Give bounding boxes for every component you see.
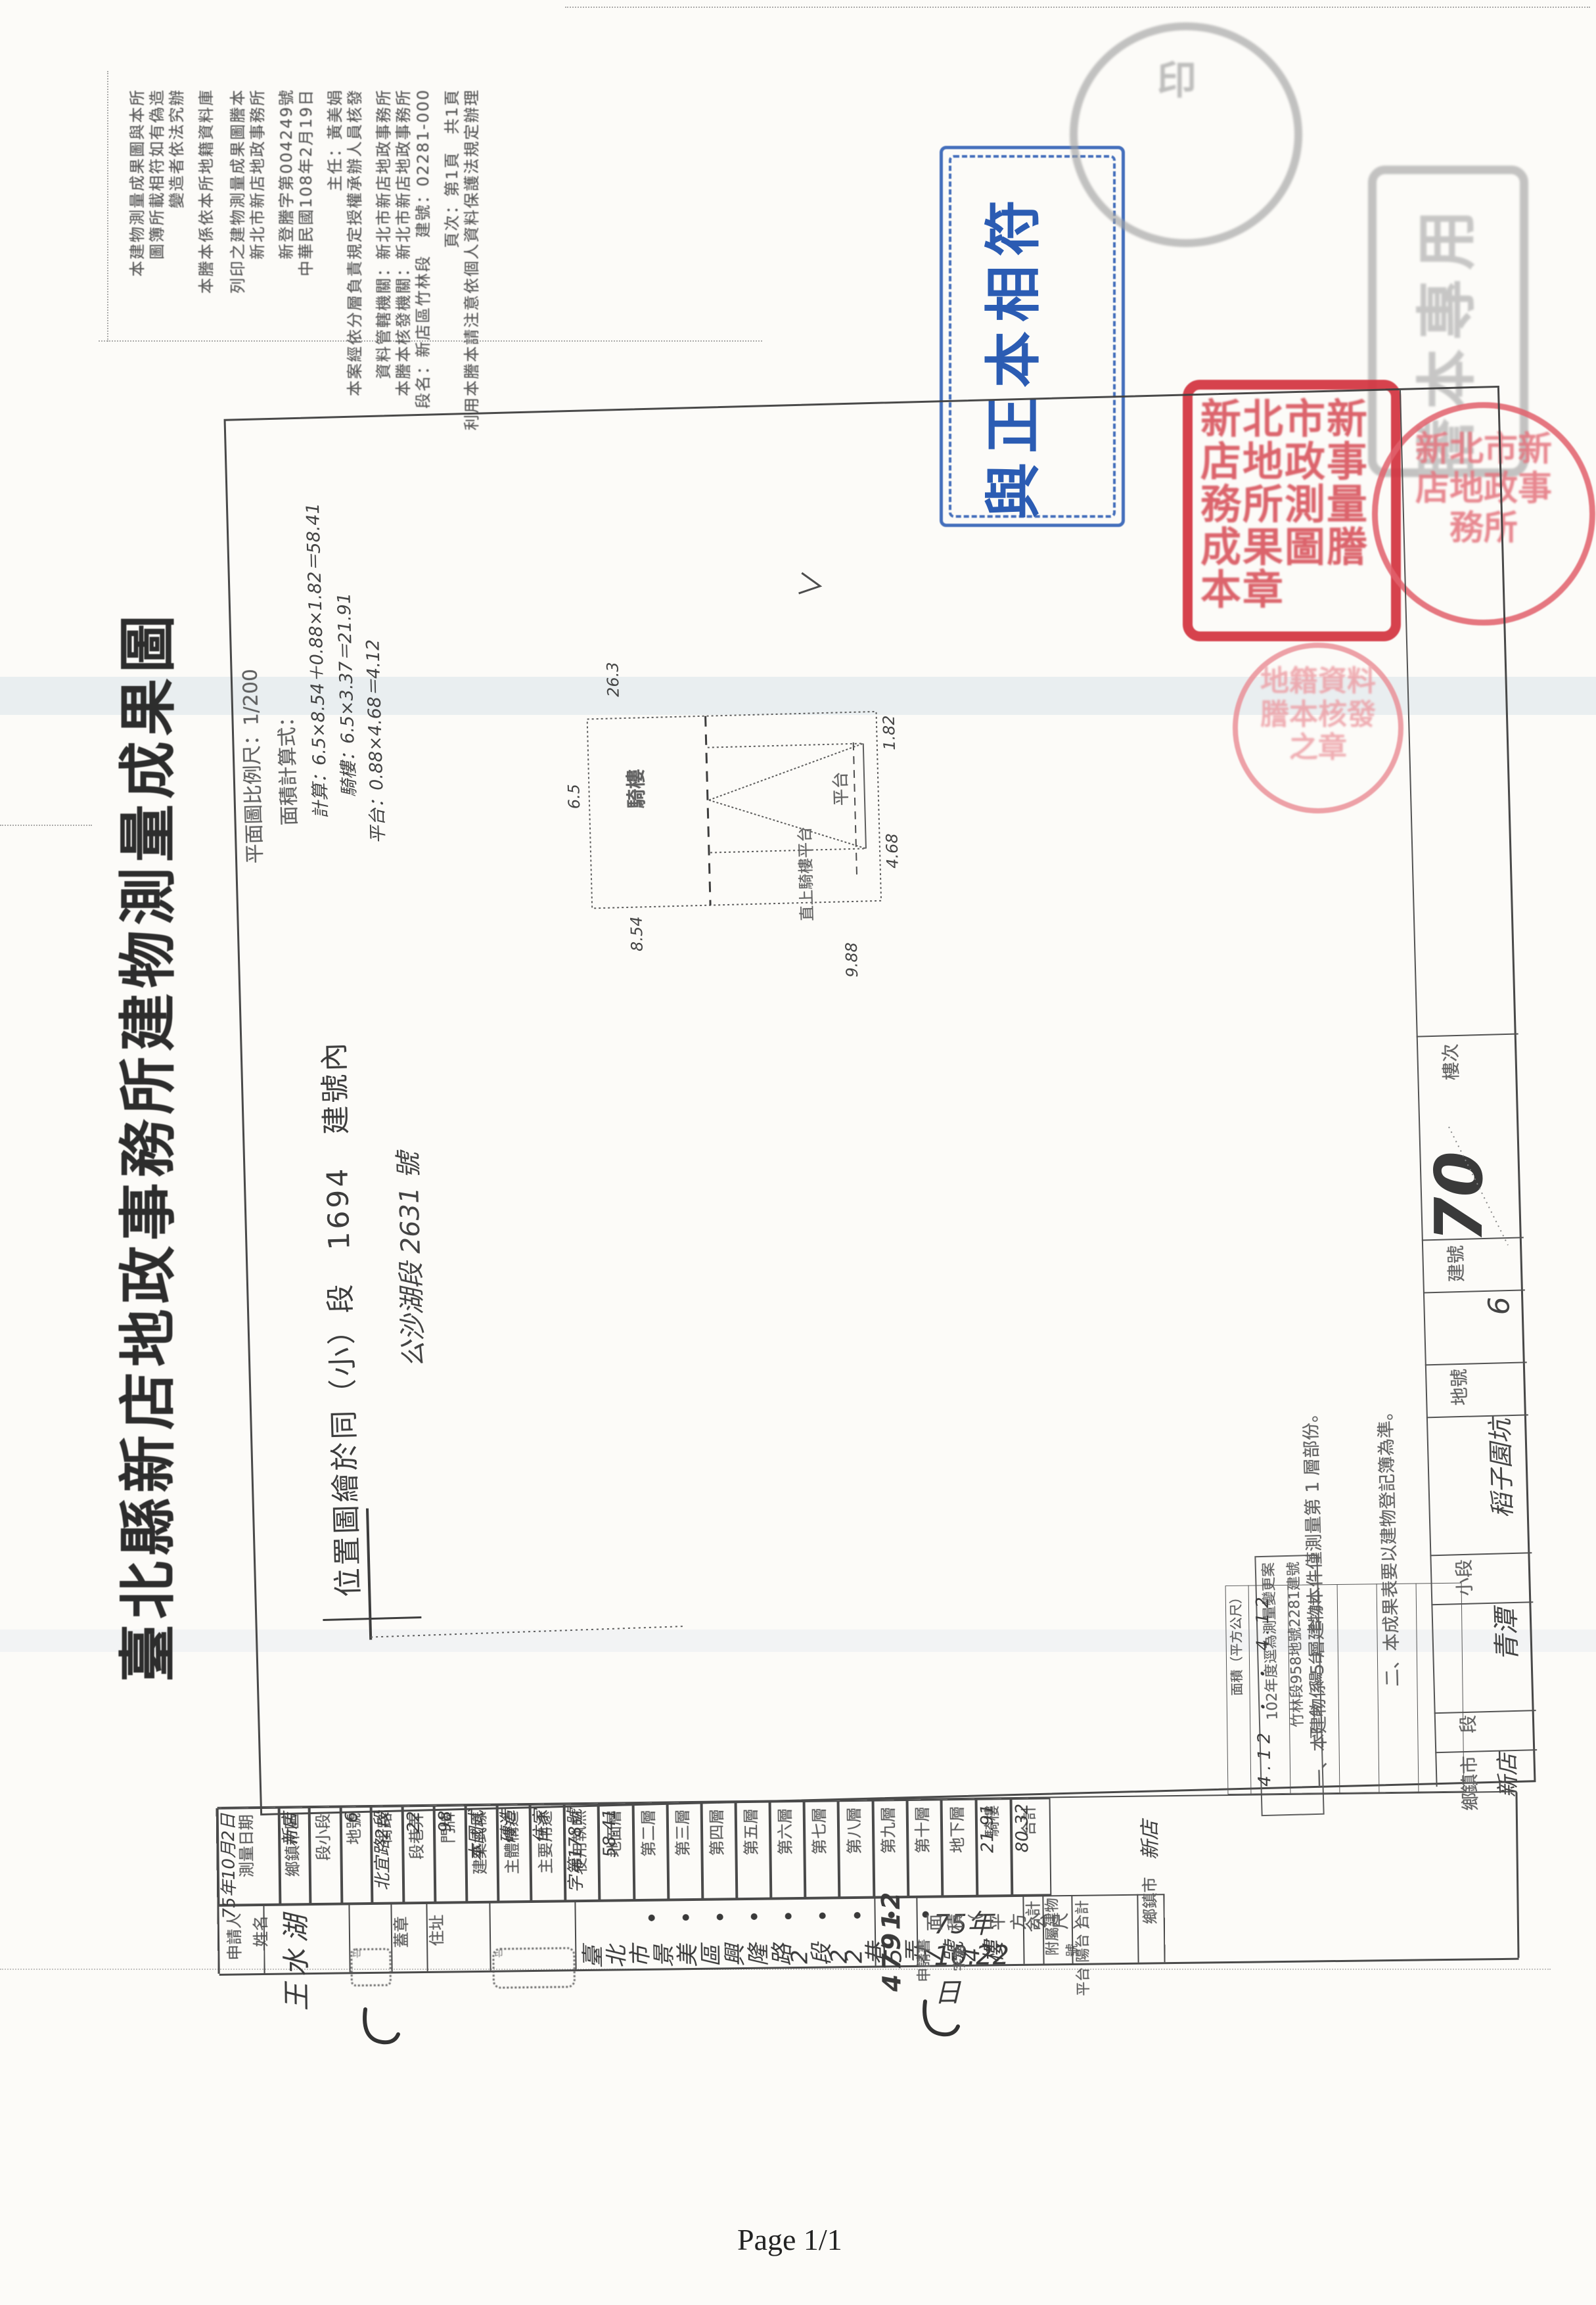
application-label: 申請書: [917, 1939, 932, 1982]
strip-cell-divider: [1423, 1289, 1525, 1293]
certification-line: 頁次：第1頁 共1頁: [444, 89, 461, 248]
stair-label: 直上騎樓平台: [797, 826, 816, 921]
table-cell-label: 段小段: [315, 1814, 332, 1861]
table-cell-label: 第二層: [641, 1810, 658, 1857]
certification-line: 段名：新店區竹林段 建號：02281-000: [415, 89, 432, 409]
dim-bottom-right: 9.88: [844, 942, 861, 978]
table-cell-value: 75年10月2日: [220, 1813, 239, 1919]
arcade-label: 騎樓: [626, 769, 648, 809]
area-calc-label: 面積計算式：: [277, 707, 300, 826]
certification-line: 列印之建物測量成果圖謄本: [230, 89, 246, 294]
scan-noise-line: [107, 71, 108, 342]
certification-line: 新登謄字第004249號: [279, 89, 295, 260]
area-calc-line: 騎樓：6.5×3.37＝21.91: [335, 593, 359, 798]
table-cell-label: 第九層: [880, 1806, 898, 1854]
certification-line: 本案經依分層負責規定授權承辦人員核發: [347, 89, 363, 396]
table-cell-label: 第十層: [915, 1806, 932, 1854]
platform-label: 平台: [832, 771, 852, 806]
plan-scale-label: 平面圖比例尺：1/200: [240, 668, 265, 863]
table-rule: [574, 1901, 576, 1969]
location-cross: [313, 1499, 712, 1655]
township-label: 鄉鎮市: [1142, 1877, 1159, 1924]
table-cell-label: 第六層: [777, 1808, 794, 1855]
area-calc-line: 平台：0.88×4.68＝4.12: [364, 639, 388, 844]
certification-line: 本謄本係依本所地籍資料庫: [198, 89, 215, 294]
table-cell-value: 21.91: [979, 1804, 997, 1853]
certification-line: 中華民國108年2月19日: [298, 89, 315, 277]
annex-col-labels: 平台 陽台 合計: [1308, 1591, 1325, 1739]
table-dot-value: [683, 1914, 689, 1921]
table-cell-label: 第八層: [846, 1807, 863, 1854]
area-calc-line: 計算：6.5×8.54＋0.88×1.82＝58.41: [304, 503, 331, 819]
strip-cell-divider: [1430, 1552, 1532, 1556]
table-cell-value: 6: [344, 1812, 361, 1823]
certification-line: 本謄本核發機關：新北市新店地政事務所: [396, 89, 412, 396]
table-rule: [1163, 1894, 1165, 1962]
dim-top: 26.3: [604, 662, 622, 697]
annex-values: 4.12 ・ ・ 4.12: [1254, 1591, 1275, 1787]
gray-round-seal-inner: 印: [1117, 59, 1242, 191]
scan-noise-line: [565, 7, 1590, 8]
certification-line: 本建物測量成果圖與本所: [129, 89, 146, 277]
location-handnote: 公沙湖段 2631 號: [395, 1152, 428, 1367]
table-cell-label: 地下層: [949, 1806, 966, 1853]
strip-value: 稻子園坑: [1488, 1418, 1516, 1518]
applicant-name-label: 姓名: [253, 1915, 270, 1947]
floor-plan: 騎樓 平台 直上騎樓平台 26.3 6.5 8.54 9.88 1.82 4.6…: [585, 678, 902, 995]
township-value: 新店: [1140, 1820, 1161, 1860]
application-number: 21974: [878, 1890, 905, 1993]
check-mark: ＞: [794, 560, 829, 606]
table-rule: [489, 1902, 491, 1971]
table-dot-value: [717, 1913, 723, 1920]
table-dot-value: [785, 1913, 792, 1919]
table-cell-label: 第四層: [709, 1808, 726, 1856]
certification-line: 新北市新店地政事務所: [250, 89, 266, 260]
strip-value: 青潭: [1493, 1609, 1522, 1662]
table-cell-value: 字第178號: [567, 1809, 586, 1893]
table-cell-value: 80.32: [1014, 1804, 1032, 1853]
table-cell-label: 測量日期: [239, 1814, 256, 1877]
table-cell-value: 北宜路2段: [374, 1812, 393, 1891]
area-unit-label: 面積（平方公尺）: [923, 1907, 1092, 1933]
application-no-prefix: 字第: [952, 1945, 966, 1971]
table-rule: [1515, 1792, 1519, 1958]
table-dot-value: [819, 1913, 826, 1919]
certification-line: 變造者依法究辦: [169, 89, 185, 208]
table-rule: [916, 1897, 918, 1965]
annex-group-label: 附屬建物: [1045, 1898, 1060, 1955]
applicant-label: 申請人: [227, 1913, 244, 1960]
certification-line: 圖簿所載相符如有偽造: [149, 89, 166, 260]
strip-label: 樓次: [1441, 1043, 1461, 1081]
strip-value: 6: [1484, 1296, 1515, 1315]
page-footer: Page 1/1: [737, 2222, 842, 2257]
annex-col-labels: 平台 陽台 合計: [1075, 1900, 1091, 1996]
pen-scratch: [1442, 1127, 1521, 1252]
address-label: 住址: [429, 1915, 446, 1946]
strip-label: 地號: [1449, 1369, 1470, 1406]
table-cell-label: 第三層: [675, 1809, 692, 1856]
table-rule: [348, 1904, 350, 1972]
table-cell-value: 本國式: [468, 1810, 487, 1861]
ink-seal: 印: [492, 1947, 576, 1989]
strip-cell-divider: [1425, 1361, 1527, 1365]
annex-unit-label: 面積（平方公尺）: [1229, 1591, 1244, 1696]
table-cell-value: 58.41: [601, 1808, 620, 1858]
table-dot-value: [649, 1915, 655, 1921]
strip-divider: [1400, 390, 1438, 1787]
table-cell-value: 98: [437, 1810, 455, 1832]
table-dot-value: [854, 1912, 860, 1919]
ink-seal: 印: [350, 1948, 392, 1987]
scan-noise-line: [0, 825, 92, 826]
dim-right-mid: 4.68: [884, 833, 901, 869]
table-cell-value: 22: [405, 1811, 424, 1833]
table-cell-label: 第五層: [743, 1808, 760, 1856]
certification-line: 資料管轄機關：新北市新店地政事務所: [376, 89, 392, 379]
certification-line: 利用本謄本請注意依個人資料保護法規定辦理: [464, 89, 480, 430]
strip-cell-divider: [1417, 1034, 1518, 1038]
table-dot-value: [751, 1913, 758, 1920]
total-label: 合計: [1025, 1901, 1042, 1932]
table-cell-value: 新店: [282, 1812, 300, 1846]
seal-column-label: 蓋章: [394, 1916, 411, 1948]
dim-bottom-left: 8.54: [629, 916, 647, 951]
dim-right-top: 1.82: [881, 715, 899, 750]
applicant-name-value: 王水湖: [281, 1908, 311, 2011]
certification-line: 主任：黃美娟: [327, 89, 344, 191]
table-cell-value: 磚造: [500, 1810, 518, 1844]
dim-left: 6.5: [566, 784, 583, 810]
scanned-survey-document: 本建物測量成果圖與本所圖簿所載相符如有偽造變造者依法究辦本謄本係依本所地籍資料庫…: [0, 0, 1596, 2305]
pen-curve-mark: [360, 2005, 406, 2051]
document-title: 臺北縣新店地政事務所建物測量成果圖: [118, 610, 179, 1682]
pen-curve-mark: [920, 1997, 966, 2043]
table-cell-label: 第七層: [811, 1807, 829, 1854]
table-rule: [1137, 1894, 1139, 1963]
table-cell-value: 住家: [533, 1810, 551, 1844]
